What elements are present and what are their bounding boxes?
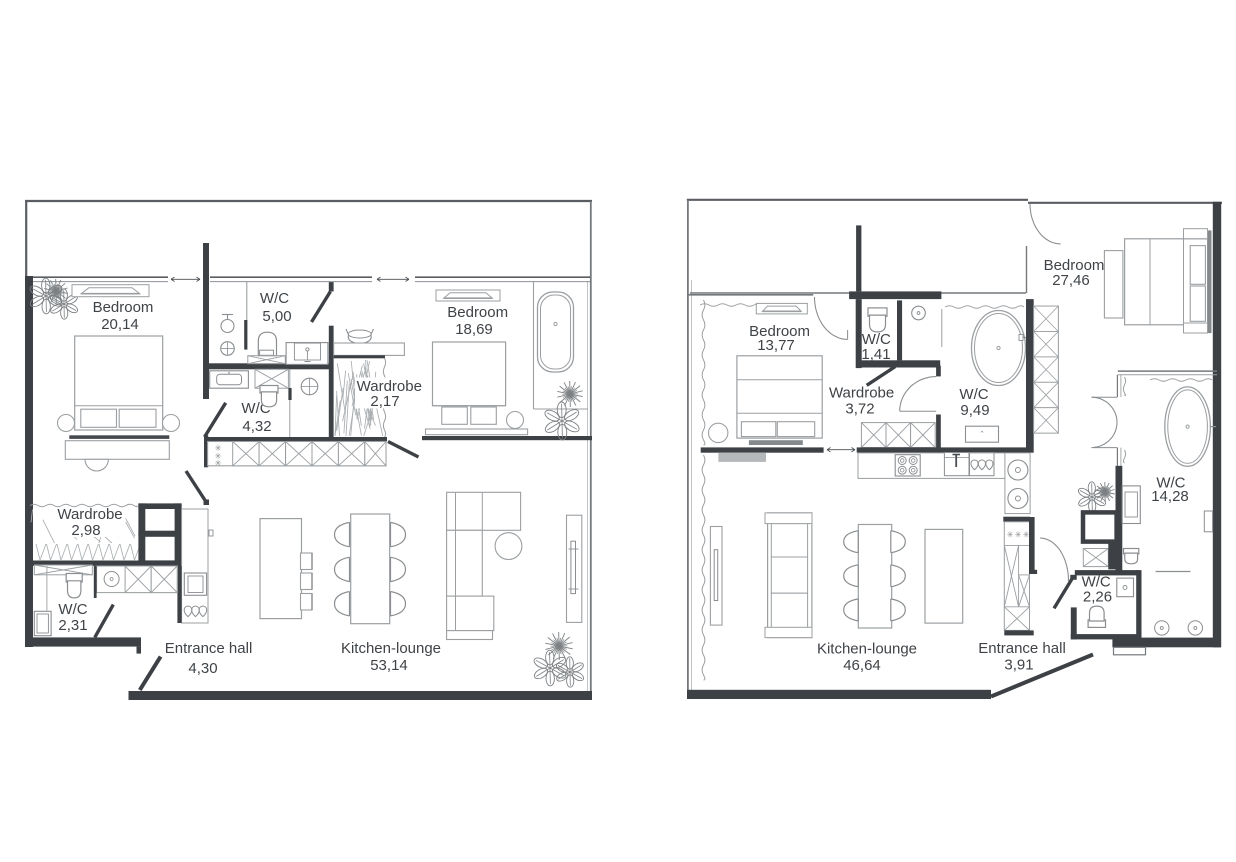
svg-text:W/C: W/C bbox=[959, 386, 988, 403]
svg-text:2,98: 2,98 bbox=[71, 522, 100, 539]
svg-text:✳: ✳ bbox=[1014, 530, 1022, 540]
svg-text:20,14: 20,14 bbox=[101, 316, 139, 333]
svg-text:2,26: 2,26 bbox=[1083, 589, 1112, 606]
svg-text:4,32: 4,32 bbox=[242, 418, 271, 435]
svg-text:1,41: 1,41 bbox=[861, 346, 890, 363]
svg-text:Entrance hall: Entrance hall bbox=[978, 640, 1066, 657]
svg-text:Bedroom: Bedroom bbox=[93, 299, 154, 316]
svg-text:Wardrobe: Wardrobe bbox=[829, 385, 894, 402]
svg-text:⌃: ⌃ bbox=[979, 430, 985, 438]
svg-text:Entrance hall: Entrance hall bbox=[165, 640, 253, 657]
svg-text:✳: ✳ bbox=[214, 458, 222, 468]
svg-text:2,31: 2,31 bbox=[58, 617, 87, 634]
svg-text:27,46: 27,46 bbox=[1052, 272, 1090, 289]
svg-text:Kitchen-lounge: Kitchen-lounge bbox=[341, 640, 441, 657]
svg-text:13,77: 13,77 bbox=[757, 337, 795, 354]
svg-text:53,14: 53,14 bbox=[370, 657, 408, 674]
svg-text:5,00: 5,00 bbox=[262, 308, 291, 325]
svg-text:9,49: 9,49 bbox=[960, 402, 989, 419]
svg-text:Bedroom: Bedroom bbox=[447, 304, 508, 321]
svg-text:18,69: 18,69 bbox=[455, 321, 493, 338]
svg-text:✳: ✳ bbox=[1006, 530, 1014, 540]
svg-text:3,91: 3,91 bbox=[1004, 657, 1033, 674]
svg-text:2,17: 2,17 bbox=[370, 393, 399, 410]
svg-text:3,72: 3,72 bbox=[845, 401, 874, 418]
svg-text:14,28: 14,28 bbox=[1151, 488, 1189, 505]
svg-text:4,30: 4,30 bbox=[188, 660, 217, 677]
svg-text:W/C: W/C bbox=[260, 290, 289, 307]
svg-text:46,64: 46,64 bbox=[843, 657, 881, 674]
svg-text:Kitchen-lounge: Kitchen-lounge bbox=[817, 641, 917, 658]
svg-text:Wardrobe: Wardrobe bbox=[57, 506, 122, 523]
svg-text:W/C: W/C bbox=[58, 601, 87, 618]
